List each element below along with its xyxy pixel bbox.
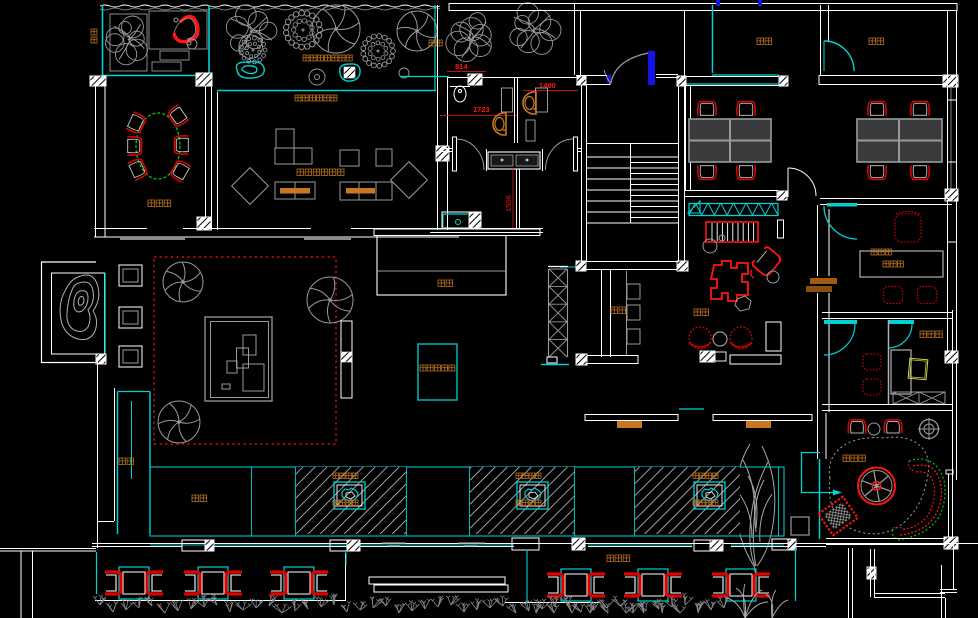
svg-text:814: 814: [455, 62, 468, 71]
svg-text:1506: 1506: [504, 195, 513, 212]
svg-text:1723: 1723: [473, 105, 490, 114]
